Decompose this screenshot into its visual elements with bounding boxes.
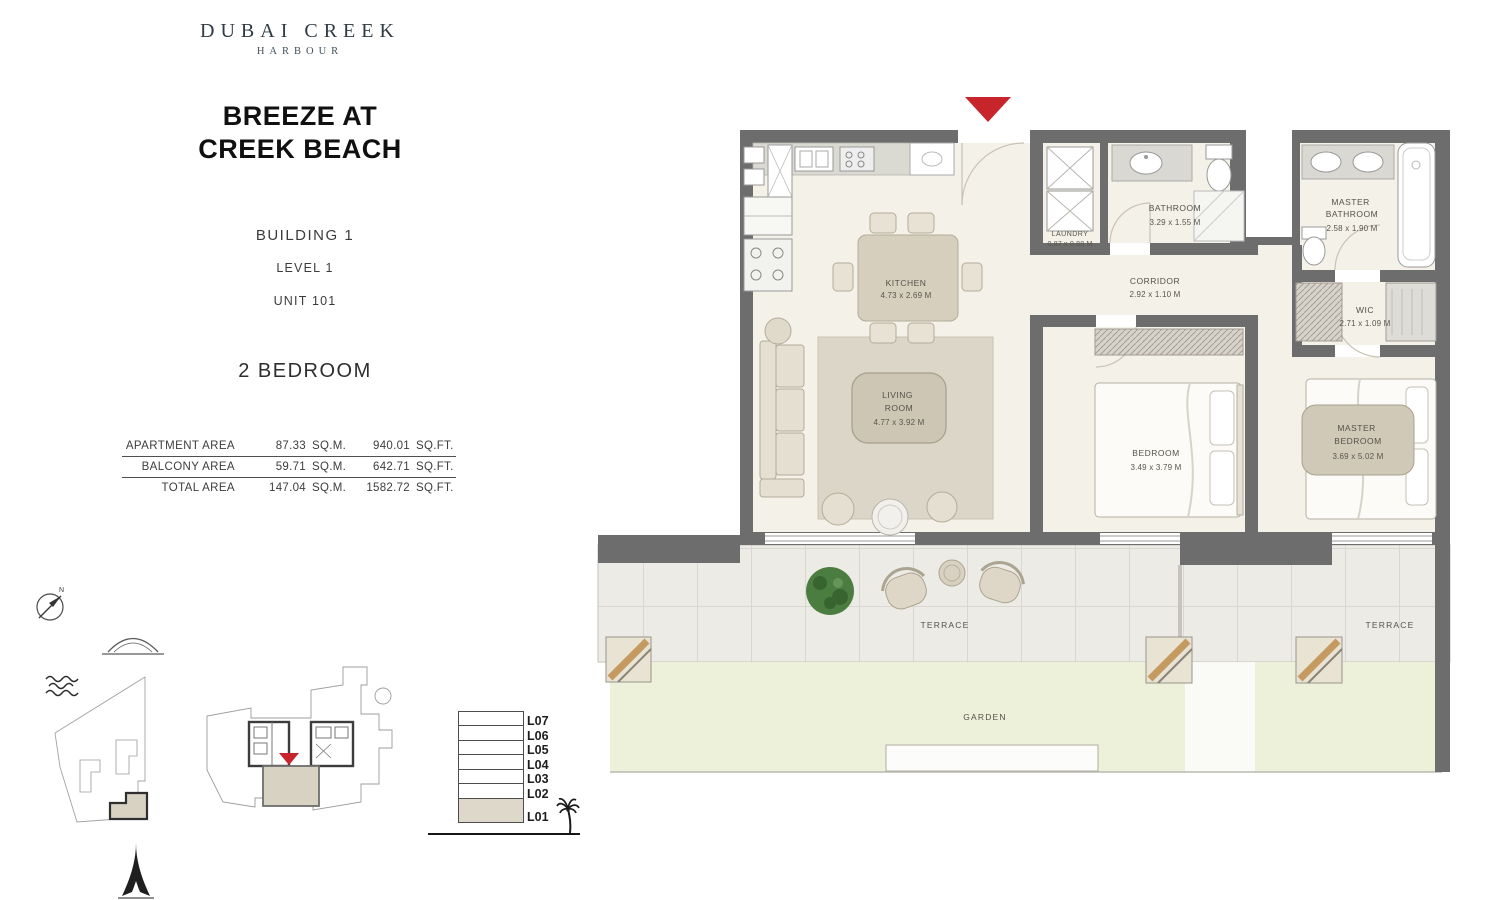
- terrace-wall-stub-left: [598, 535, 740, 563]
- toilet: [1303, 237, 1325, 265]
- entrance-marker-icon: [965, 97, 1011, 122]
- apartment-area-label: APARTMENT AREA: [122, 440, 235, 452]
- floorplan-page: DUBAI CREEK HARBOUR BREEZE AT CREEK BEAC…: [0, 0, 1500, 900]
- garden-bench: [886, 745, 1098, 771]
- tower-icon: [118, 843, 154, 898]
- site-building-outline: [80, 760, 100, 792]
- table-row-apartment: APARTMENT AREA 87.33 SQ.M. 940.01 SQ.FT.: [122, 436, 456, 457]
- key-plan-core: [249, 722, 353, 766]
- level-box-highlighted: [458, 798, 524, 823]
- palm-tree-icon: [556, 798, 582, 834]
- brand-name: DUBAI CREEK: [150, 20, 450, 43]
- total-area-sqm: 147.04: [235, 482, 306, 494]
- balcony-area-sqft: 642.71: [350, 461, 410, 473]
- terrace-right-label: TERRACE: [1365, 620, 1414, 630]
- bridge-icon: [102, 639, 164, 655]
- table-row-total: TOTAL AREA 147.04 SQ.M. 1582.72 SQ.FT.: [122, 478, 456, 498]
- terrace-table: [939, 560, 965, 586]
- pillow: [1210, 451, 1234, 505]
- north-label: N: [59, 587, 64, 594]
- laundry-label: LAUNDRY: [1052, 231, 1089, 238]
- wic-dims: 2.71 x 1.09 M: [1339, 319, 1390, 328]
- garden-label: GARDEN: [963, 712, 1007, 722]
- unit-label: UNIT 101: [155, 294, 455, 308]
- garden-path: [1185, 662, 1255, 772]
- bedroom-label: BEDROOM: [1132, 448, 1179, 458]
- laundry-units: [1047, 147, 1093, 231]
- area-table: APARTMENT AREA 87.33 SQ.M. 940.01 SQ.FT.…: [122, 436, 456, 498]
- level-label-l03: L03: [527, 773, 549, 786]
- project-title-line1: BREEZE AT: [150, 100, 450, 133]
- pouf: [822, 493, 854, 525]
- building-recess: [1246, 130, 1292, 237]
- apartment-area-sqft: 940.01: [350, 440, 410, 452]
- level-label: LEVEL 1: [155, 261, 455, 275]
- balcony-area-label: BALCONY AREA: [122, 461, 235, 473]
- unit-type-label: 2 BEDROOM: [155, 360, 455, 383]
- kitchen-dims: 4.73 x 2.69 M: [880, 291, 931, 300]
- sqm-unit: SQ.M.: [306, 440, 350, 452]
- terrace-left-label: TERRACE: [920, 620, 969, 630]
- master-bedroom-dims: 3.69 x 5.02 M: [1332, 452, 1383, 461]
- bathroom-label: BATHROOM: [1149, 203, 1201, 213]
- level-label-l01: L01: [527, 811, 549, 824]
- bathtub: [1398, 143, 1435, 267]
- building-label: BUILDING 1: [155, 227, 455, 244]
- laundry-dims: 0.87 x 0.88 M: [1047, 241, 1092, 248]
- level-label-l06: L06: [527, 730, 549, 743]
- living-room-dims: 4.77 x 3.92 M: [873, 418, 924, 427]
- pouf: [927, 492, 957, 522]
- level-label-l07: L07: [527, 715, 549, 728]
- site-plan: [55, 677, 147, 822]
- apartment-area-sqm: 87.33: [235, 440, 306, 452]
- sink: [1353, 152, 1383, 172]
- table-row-balcony: BALCONY AREA 59.71 SQ.M. 642.71 SQ.FT.: [122, 457, 456, 478]
- terrace-wall-stub-middle: [1180, 535, 1332, 565]
- compass-icon: N: [37, 587, 64, 620]
- coffee-table: [872, 499, 908, 535]
- level-label-l02: L02: [527, 788, 549, 801]
- site-building-highlighted: [110, 793, 147, 819]
- waves-icon: [46, 677, 78, 696]
- sqm-unit: SQ.M.: [306, 461, 350, 473]
- side-table: [765, 318, 791, 344]
- floor-plan: KITCHEN 4.73 x 2.69 M LIVING ROOM 4.77 x…: [590, 85, 1470, 785]
- sqm-unit: SQ.M.: [306, 482, 350, 494]
- project-title: BREEZE AT CREEK BEACH: [150, 100, 450, 166]
- sqft-unit: SQ.FT.: [410, 440, 455, 452]
- master-bathroom-dims: 2.58 x 1.90 M: [1326, 224, 1377, 233]
- wic-closet-right: [1386, 283, 1436, 341]
- brand-subtitle: HARBOUR: [150, 46, 450, 57]
- level-stack: L07 L06 L05 L04 L03 L02 L01: [428, 712, 580, 842]
- kitchen-label: KITCHEN: [886, 278, 927, 288]
- level-label-l05: L05: [527, 744, 549, 757]
- key-plan-unit-highlight: [263, 766, 319, 806]
- key-plan: [193, 652, 408, 842]
- corridor-dims: 2.92 x 1.10 M: [1129, 290, 1180, 299]
- bedroom-wardrobe: [1095, 329, 1243, 355]
- corridor-label: CORRIDOR: [1130, 276, 1180, 286]
- bathroom-dims: 3.29 x 1.55 M: [1149, 218, 1200, 227]
- level-label-l04: L04: [527, 759, 549, 772]
- site-building-outline: [116, 740, 137, 774]
- sqft-unit: SQ.FT.: [410, 461, 455, 473]
- bedroom-dims: 3.49 x 3.79 M: [1130, 463, 1181, 472]
- wic-label: WIC: [1356, 305, 1374, 315]
- sink: [1311, 152, 1341, 172]
- entrance-opening: [958, 130, 1030, 143]
- garden-right: [1255, 662, 1442, 772]
- brand-logo: DUBAI CREEK HARBOUR: [150, 20, 450, 57]
- sofa: [760, 341, 776, 479]
- balcony-area-sqm: 59.71: [235, 461, 306, 473]
- total-area-label: TOTAL AREA: [122, 482, 235, 494]
- wic-closet-left: [1296, 283, 1342, 341]
- pillow: [1210, 391, 1234, 445]
- toilet: [1207, 159, 1231, 191]
- sqft-unit: SQ.FT.: [410, 482, 455, 494]
- project-title-line2: CREEK BEACH: [150, 133, 450, 166]
- total-area-sqft: 1582.72: [350, 482, 410, 494]
